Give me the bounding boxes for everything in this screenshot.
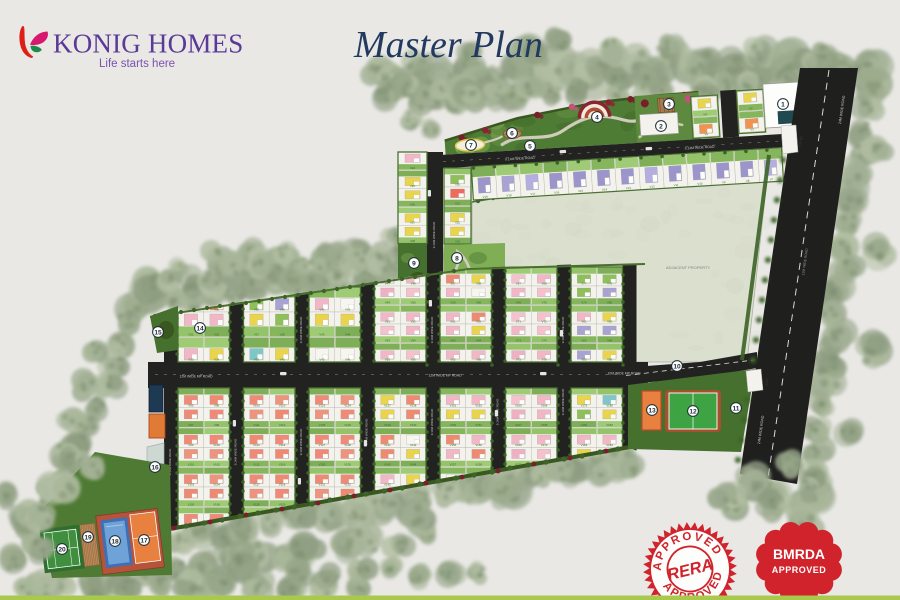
svg-text:V102: V102 bbox=[213, 463, 220, 467]
svg-text:V34: V34 bbox=[214, 358, 219, 362]
svg-text:1: 1 bbox=[781, 101, 785, 108]
svg-text:17: 17 bbox=[140, 537, 148, 544]
svg-text:V77: V77 bbox=[581, 282, 586, 286]
svg-text:BMRDA: BMRDA bbox=[773, 546, 825, 562]
svg-text:10: 10 bbox=[673, 363, 681, 370]
svg-text:V132: V132 bbox=[344, 483, 351, 487]
svg-text:V137: V137 bbox=[384, 403, 391, 407]
svg-text:V127: V127 bbox=[319, 443, 326, 447]
svg-text:V86: V86 bbox=[607, 358, 612, 362]
svg-text:V129: V129 bbox=[319, 463, 326, 467]
svg-text:V112: V112 bbox=[279, 423, 286, 427]
svg-text:V166: V166 bbox=[541, 403, 548, 407]
svg-text:V15: V15 bbox=[578, 189, 584, 193]
svg-text:V95: V95 bbox=[188, 403, 193, 407]
svg-text:V119: V119 bbox=[253, 502, 260, 506]
svg-text:V169: V169 bbox=[515, 443, 522, 447]
svg-text:V40: V40 bbox=[280, 358, 285, 362]
svg-text:V68: V68 bbox=[542, 282, 547, 286]
svg-text:V120: V120 bbox=[279, 502, 286, 506]
svg-text:V98: V98 bbox=[214, 423, 219, 427]
svg-text:V125: V125 bbox=[319, 423, 326, 427]
svg-text:V123: V123 bbox=[319, 403, 326, 407]
svg-text:V41: V41 bbox=[319, 308, 324, 312]
svg-text:20: 20 bbox=[58, 546, 66, 553]
svg-text:APPROVED: APPROVED bbox=[772, 565, 827, 575]
svg-text:15: 15 bbox=[154, 329, 162, 336]
svg-text:V32: V32 bbox=[214, 333, 219, 337]
svg-text:V55: V55 bbox=[385, 358, 390, 362]
svg-text:V60: V60 bbox=[476, 301, 481, 305]
svg-text:V96: V96 bbox=[214, 403, 219, 407]
svg-text:V152: V152 bbox=[475, 403, 482, 407]
svg-text:11: 11 bbox=[733, 405, 740, 412]
svg-text:V21: V21 bbox=[455, 202, 460, 206]
svg-text:V109: V109 bbox=[253, 403, 260, 407]
svg-text:V51: V51 bbox=[385, 320, 390, 324]
svg-text:V43: V43 bbox=[319, 333, 324, 337]
svg-text:V179: V179 bbox=[581, 403, 588, 407]
svg-text:18: 18 bbox=[111, 538, 119, 545]
svg-text:V54: V54 bbox=[411, 339, 416, 343]
svg-text:9: 9 bbox=[412, 260, 416, 267]
svg-text:V154: V154 bbox=[475, 423, 482, 427]
svg-text:V19: V19 bbox=[482, 195, 488, 199]
svg-text:12M WIDE MP ROAD: 12M WIDE MP ROAD bbox=[428, 374, 462, 378]
svg-text:V118: V118 bbox=[279, 483, 286, 487]
svg-text:V153: V153 bbox=[450, 423, 457, 427]
svg-text:9.14M WIDE ROAD: 9.14M WIDE ROAD bbox=[561, 388, 565, 415]
svg-text:V11: V11 bbox=[674, 183, 679, 187]
svg-text:V73: V73 bbox=[516, 339, 521, 343]
svg-text:V182: V182 bbox=[606, 423, 613, 427]
svg-text:2: 2 bbox=[659, 123, 663, 130]
svg-text:V66: V66 bbox=[476, 358, 481, 362]
svg-text:V85: V85 bbox=[581, 358, 586, 362]
svg-text:V170: V170 bbox=[541, 443, 548, 447]
svg-text:V144: V144 bbox=[410, 463, 417, 467]
svg-text:V104: V104 bbox=[213, 483, 220, 487]
svg-text:V52: V52 bbox=[411, 320, 416, 324]
svg-text:V44: V44 bbox=[345, 333, 350, 337]
svg-text:V33: V33 bbox=[188, 358, 193, 362]
svg-text:V13: V13 bbox=[626, 186, 632, 190]
svg-text:V139: V139 bbox=[384, 423, 391, 427]
svg-text:V80: V80 bbox=[607, 301, 612, 305]
svg-text:14: 14 bbox=[196, 325, 204, 332]
svg-text:9.14M WIDE ROAD: 9.14M WIDE ROAD bbox=[299, 428, 303, 455]
svg-text:V69: V69 bbox=[516, 301, 521, 305]
svg-text:V130: V130 bbox=[344, 463, 351, 467]
svg-text:V75: V75 bbox=[516, 358, 521, 362]
svg-text:10M WIDE MP ROAD: 10M WIDE MP ROAD bbox=[607, 372, 641, 376]
svg-text:V16: V16 bbox=[554, 190, 560, 194]
svg-text:V184: V184 bbox=[606, 443, 613, 447]
svg-text:9.14M WIDE ROAD: 9.14M WIDE ROAD bbox=[430, 408, 434, 435]
svg-text:V168: V168 bbox=[541, 423, 548, 427]
svg-text:V59: V59 bbox=[450, 301, 455, 305]
svg-text:V36: V36 bbox=[280, 308, 285, 312]
svg-text:KONIG HOMES: KONIG HOMES bbox=[53, 29, 243, 59]
svg-text:V156: V156 bbox=[475, 443, 482, 447]
svg-text:V20: V20 bbox=[455, 183, 460, 187]
svg-text:9.14M WIDE ROAD: 9.14M WIDE ROAD bbox=[432, 221, 436, 248]
svg-text:V114: V114 bbox=[279, 443, 286, 447]
svg-text:V97: V97 bbox=[188, 423, 193, 427]
svg-text:12: 12 bbox=[689, 408, 697, 415]
svg-text:V145: V145 bbox=[384, 483, 391, 487]
svg-text:V10: V10 bbox=[697, 181, 703, 185]
svg-text:V100: V100 bbox=[213, 443, 220, 447]
svg-text:V58: V58 bbox=[476, 282, 481, 286]
svg-text:V17: V17 bbox=[530, 192, 536, 196]
svg-text:V57: V57 bbox=[450, 282, 455, 286]
svg-text:V46: V46 bbox=[345, 358, 350, 362]
svg-text:12M WIDE MP ROAD: 12M WIDE MP ROAD bbox=[179, 375, 213, 379]
svg-text:V128: V128 bbox=[344, 443, 351, 447]
svg-text:V126: V126 bbox=[344, 423, 351, 427]
svg-text:V28: V28 bbox=[410, 239, 415, 243]
svg-text:V72: V72 bbox=[542, 320, 547, 324]
svg-text:V26: V26 bbox=[410, 202, 415, 206]
svg-text:V143: V143 bbox=[384, 463, 391, 467]
svg-text:V37: V37 bbox=[254, 333, 259, 337]
svg-text:V24: V24 bbox=[410, 166, 415, 170]
svg-text:9.14M WIDE ROAD: 9.14M WIDE ROAD bbox=[234, 438, 238, 465]
svg-text:Master Plan: Master Plan bbox=[353, 24, 543, 66]
svg-text:V74: V74 bbox=[542, 339, 547, 343]
svg-text:4: 4 bbox=[595, 114, 599, 121]
svg-text:V111: V111 bbox=[253, 423, 260, 427]
svg-text:6: 6 bbox=[510, 130, 514, 137]
svg-text:V64: V64 bbox=[476, 339, 481, 343]
svg-text:V31: V31 bbox=[188, 333, 193, 337]
svg-text:V155: V155 bbox=[450, 443, 457, 447]
svg-text:13: 13 bbox=[648, 407, 656, 414]
svg-text:V25: V25 bbox=[410, 184, 415, 188]
svg-text:16: 16 bbox=[151, 464, 159, 471]
svg-text:V83: V83 bbox=[581, 339, 586, 343]
svg-text:3: 3 bbox=[667, 101, 671, 108]
svg-text:V62: V62 bbox=[476, 320, 481, 324]
svg-text:V181: V181 bbox=[581, 423, 588, 427]
svg-text:Life starts here: Life starts here bbox=[99, 58, 175, 70]
svg-text:V48: V48 bbox=[411, 282, 416, 286]
svg-text:V38: V38 bbox=[280, 333, 285, 337]
svg-text:V56: V56 bbox=[411, 358, 416, 362]
svg-text:V27: V27 bbox=[410, 221, 415, 225]
svg-text:V71: V71 bbox=[516, 320, 521, 324]
svg-text:V105: V105 bbox=[188, 502, 195, 506]
svg-text:19: 19 bbox=[84, 534, 92, 541]
svg-text:9.14M WIDE ROAD: 9.14M WIDE ROAD bbox=[430, 316, 434, 343]
svg-text:V22: V22 bbox=[455, 221, 460, 225]
svg-text:V167: V167 bbox=[515, 423, 522, 427]
svg-text:V76: V76 bbox=[542, 358, 547, 362]
svg-text:V106: V106 bbox=[213, 502, 220, 506]
svg-text:V183: V183 bbox=[581, 443, 588, 447]
svg-text:V165: V165 bbox=[515, 403, 522, 407]
svg-text:V63: V63 bbox=[450, 339, 455, 343]
svg-text:V138: V138 bbox=[410, 403, 417, 407]
svg-text:V117: V117 bbox=[253, 483, 260, 487]
svg-text:V45: V45 bbox=[319, 358, 324, 362]
svg-text:V110: V110 bbox=[279, 403, 286, 407]
svg-text:V35: V35 bbox=[254, 308, 259, 312]
svg-text:8: 8 bbox=[455, 255, 459, 262]
svg-text:V39: V39 bbox=[254, 358, 259, 362]
svg-text:V18: V18 bbox=[506, 193, 512, 197]
svg-text:V49: V49 bbox=[385, 301, 390, 305]
svg-text:V70: V70 bbox=[542, 301, 547, 305]
svg-text:V23: V23 bbox=[455, 240, 460, 244]
svg-text:V14: V14 bbox=[602, 187, 608, 191]
svg-text:ADJACENT PROPERTY: ADJACENT PROPERTY bbox=[666, 265, 710, 270]
svg-text:V99: V99 bbox=[188, 443, 193, 447]
svg-text:V78: V78 bbox=[607, 282, 612, 286]
svg-text:V79: V79 bbox=[581, 301, 586, 305]
svg-text:V84: V84 bbox=[607, 339, 612, 343]
svg-text:V151: V151 bbox=[450, 403, 457, 407]
svg-text:V141: V141 bbox=[384, 443, 391, 447]
svg-text:V61: V61 bbox=[450, 320, 455, 324]
svg-text:V82: V82 bbox=[607, 320, 612, 324]
svg-text:V180: V180 bbox=[606, 403, 613, 407]
svg-text:V67: V67 bbox=[516, 282, 521, 286]
svg-text:9.14M WIDE ROAD: 9.14M WIDE ROAD bbox=[561, 316, 565, 343]
svg-text:V65: V65 bbox=[450, 358, 455, 362]
svg-text:V140: V140 bbox=[410, 423, 417, 427]
svg-text:V113: V113 bbox=[253, 443, 260, 447]
svg-text:V116: V116 bbox=[279, 463, 286, 467]
svg-text:V53: V53 bbox=[385, 339, 390, 343]
svg-text:7: 7 bbox=[469, 142, 473, 149]
svg-text:9.14M WIDE ROAD: 9.14M WIDE ROAD bbox=[299, 316, 303, 343]
svg-text:V124: V124 bbox=[344, 403, 351, 407]
svg-text:5: 5 bbox=[528, 143, 532, 150]
svg-text:V42: V42 bbox=[345, 308, 350, 312]
svg-text:V81: V81 bbox=[581, 320, 586, 324]
svg-text:V142: V142 bbox=[410, 443, 417, 447]
svg-text:V157: V157 bbox=[450, 463, 457, 467]
svg-text:V101: V101 bbox=[188, 463, 195, 467]
svg-text:V103: V103 bbox=[188, 483, 195, 487]
svg-text:V158: V158 bbox=[475, 463, 482, 467]
svg-text:V50: V50 bbox=[411, 301, 416, 305]
svg-text:V115: V115 bbox=[253, 463, 260, 467]
svg-text:V131: V131 bbox=[319, 483, 326, 487]
svg-text:V12: V12 bbox=[649, 184, 655, 188]
